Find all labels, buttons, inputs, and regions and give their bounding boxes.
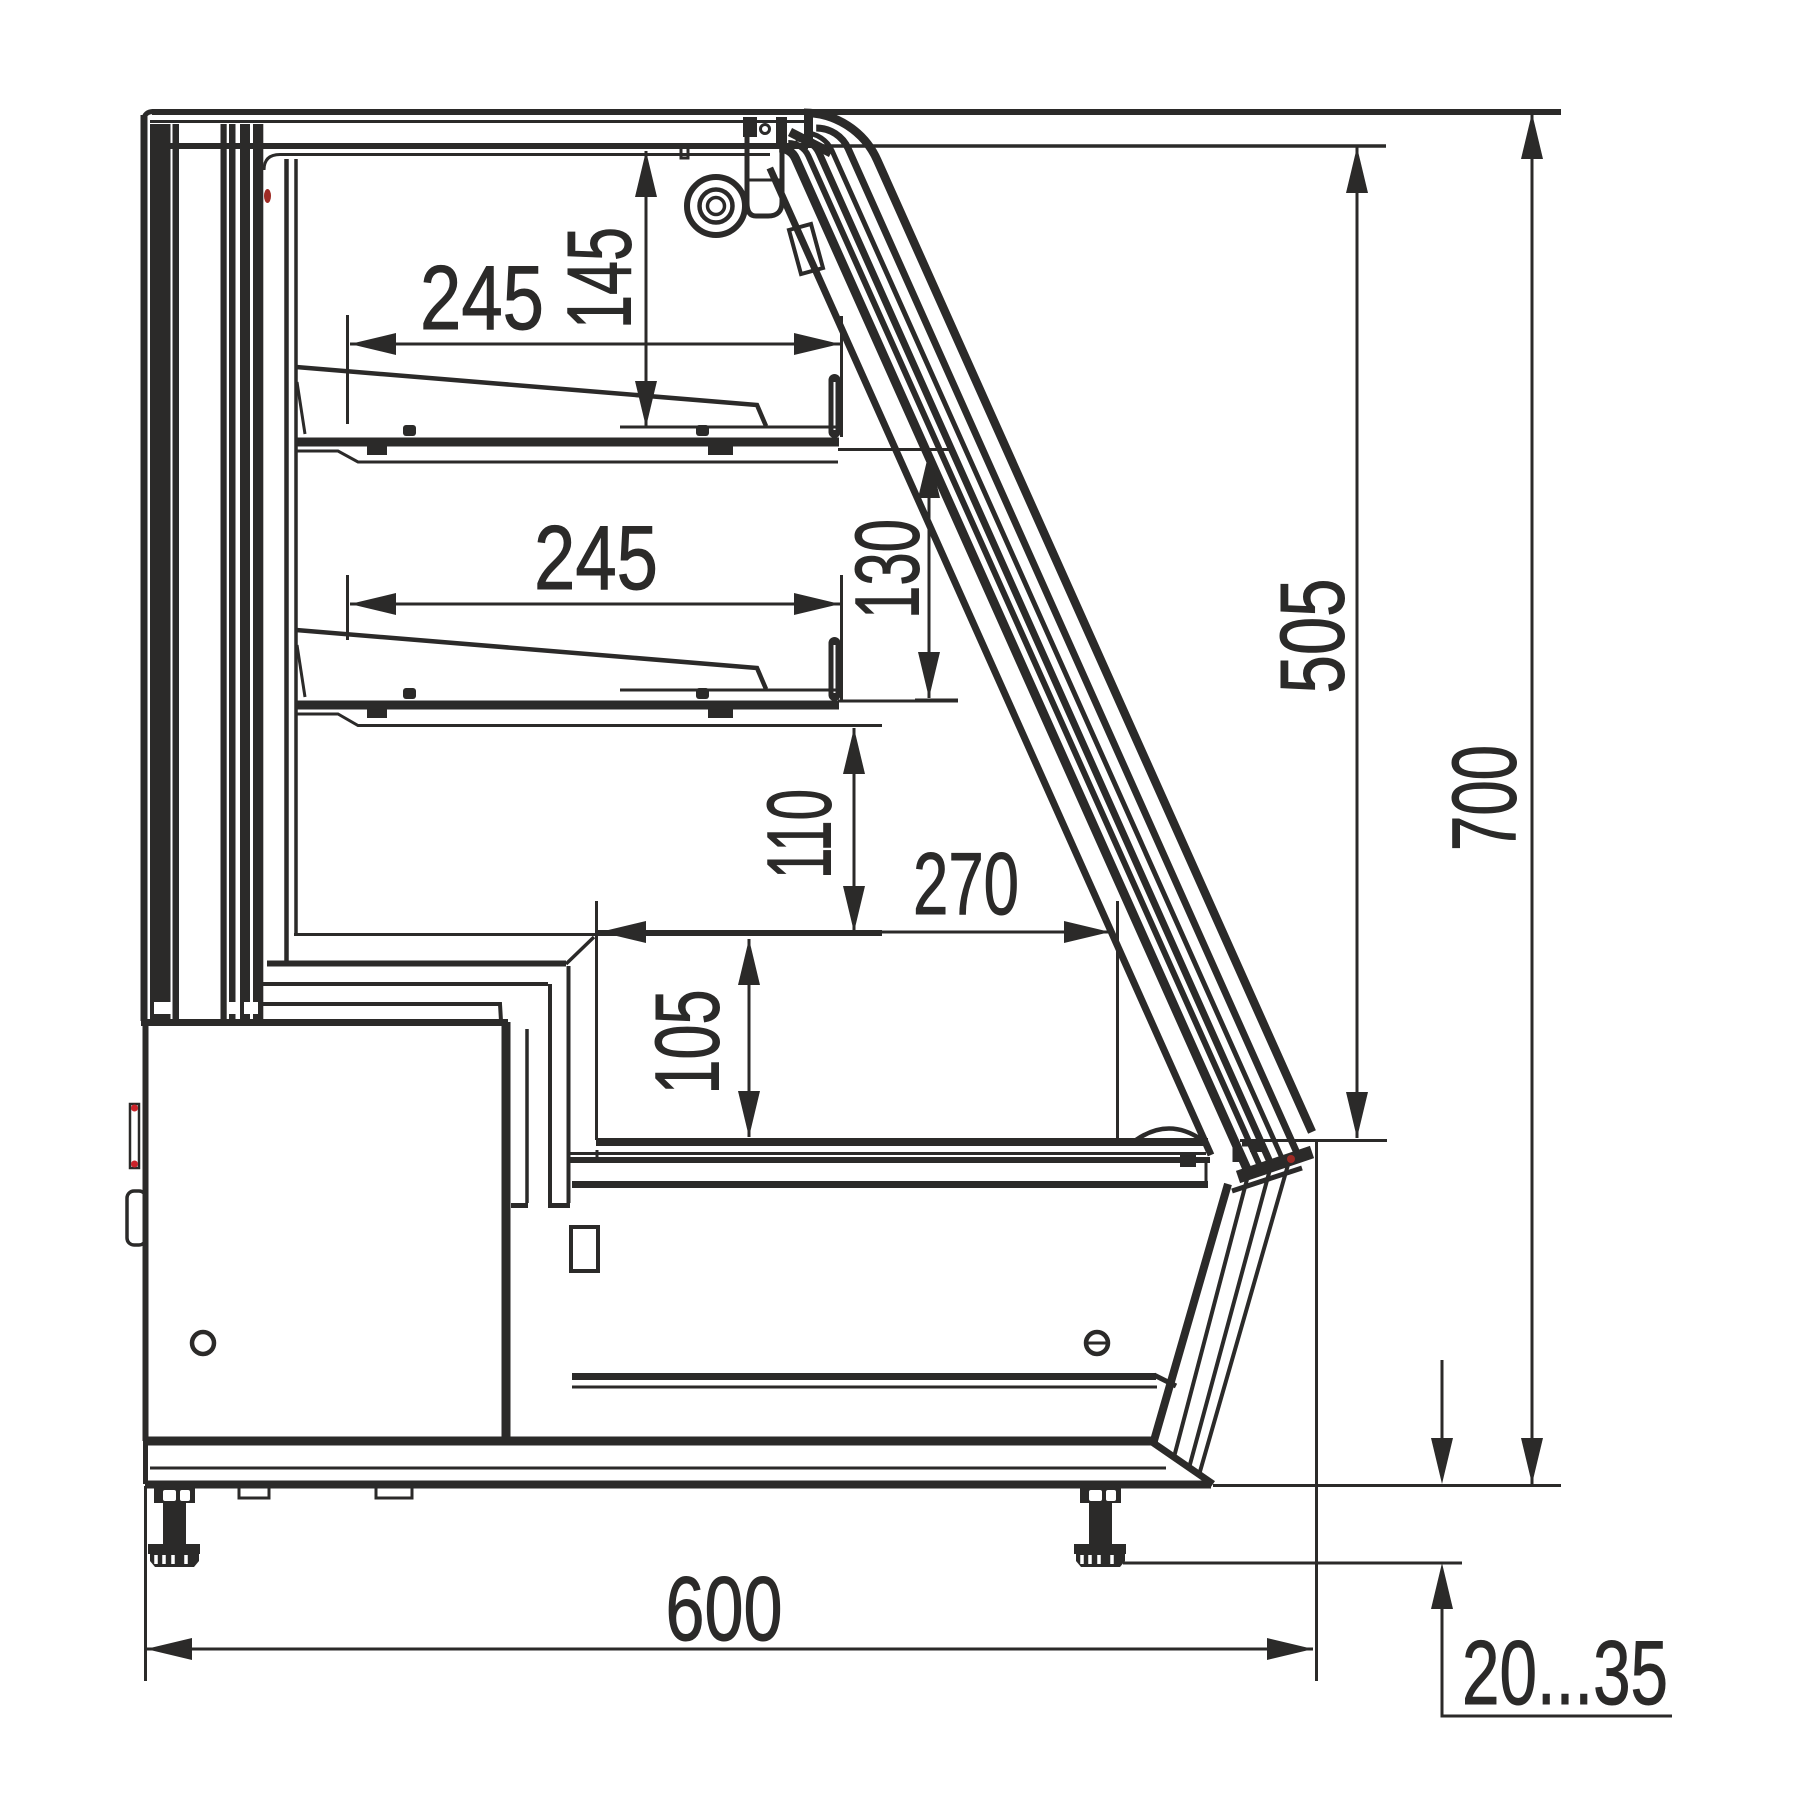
svg-text:700: 700 [1435, 745, 1536, 851]
svg-text:130: 130 [838, 519, 939, 619]
svg-text:600: 600 [666, 1559, 783, 1660]
svg-text:505: 505 [1263, 579, 1364, 694]
svg-text:105: 105 [638, 990, 739, 1095]
svg-text:145: 145 [550, 227, 651, 329]
svg-text:20...35: 20...35 [1462, 1623, 1668, 1724]
svg-text:245: 245 [420, 248, 544, 349]
svg-text:270: 270 [913, 834, 1019, 933]
svg-text:245: 245 [534, 508, 658, 609]
svg-text:110: 110 [750, 789, 851, 879]
